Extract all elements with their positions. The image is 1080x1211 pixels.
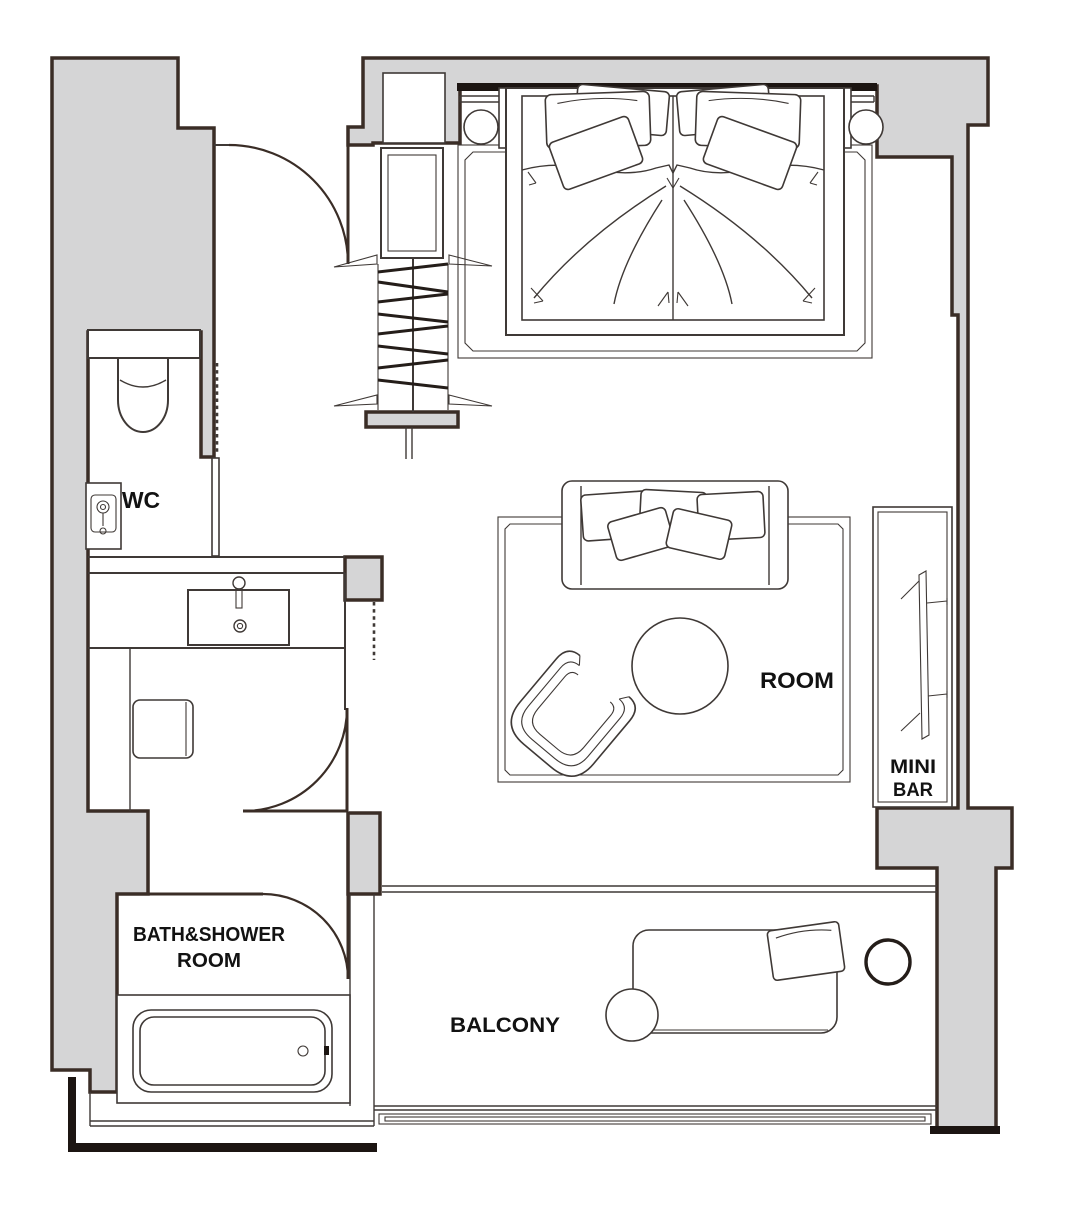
wc-vanity-divider-wall [88,557,345,573]
bathtub-faucet-mark [324,1046,329,1055]
closet-base-shelf [366,412,458,427]
room-balcony-glazing [382,886,937,892]
bath-balcony-divider [350,894,374,1126]
armchair [501,645,641,786]
minibar: MINI BAR [873,507,952,807]
wall-end-cap [930,1126,1000,1134]
living-area: ROOM [498,481,850,787]
bedside-lamp-left [464,110,498,144]
label-balcony: BALCONY [450,1014,560,1037]
label-bath-shower-1: BATH&SHOWER [133,924,286,946]
bed-side-stub-left [499,88,506,148]
property-line-vertical [68,1077,76,1152]
wc-sliding-door-icon [212,458,219,556]
label-wc: WC [122,487,160,513]
entry-door-icon [229,145,348,264]
label-bath-shower-2: ROOM [177,950,241,972]
wardrobe-hangers [334,255,492,412]
floor-plan: WC BATH&SHOWER ROOM [0,0,1080,1211]
sofa [562,481,788,589]
balcony-side-table [606,989,658,1041]
doors [212,145,348,979]
balcony-railing [379,1114,931,1124]
bed-side-stub-right [844,88,851,148]
balcony: BALCONY [379,921,931,1124]
floor-plan-page: WC BATH&SHOWER ROOM [0,0,1080,1211]
balcony-lounger [633,921,845,1033]
balcony-south-edge [374,1106,937,1110]
washbasin-sink-icon [188,577,289,645]
coffee-table [632,618,728,714]
label-minibar-2: BAR [893,780,933,801]
vanity-area [133,577,289,758]
laundry-stool-icon [133,700,193,758]
balcony-stool [866,940,910,984]
property-line-horizontal [68,1143,377,1152]
closet-stub-wall [406,427,412,459]
wc-room: WC [86,330,200,549]
double-bed [506,84,844,335]
pillow [767,921,845,981]
label-room: ROOM [760,668,834,693]
wall-chunk-bath-ne [348,813,380,894]
bathtub-icon [117,995,350,1103]
bedroom [458,84,883,358]
vanity-door-icon [244,708,347,811]
toilet-icon [88,330,200,432]
label-minibar-1: MINI [890,757,936,778]
bath-shower-room: BATH&SHOWER ROOM [117,924,350,1103]
hand-basin-icon [86,483,121,549]
wall-chunk-vanity-ne [345,557,382,600]
luggage-rack [381,148,443,258]
closet-niche [383,73,445,143]
bedside-lamp-right [849,110,883,144]
